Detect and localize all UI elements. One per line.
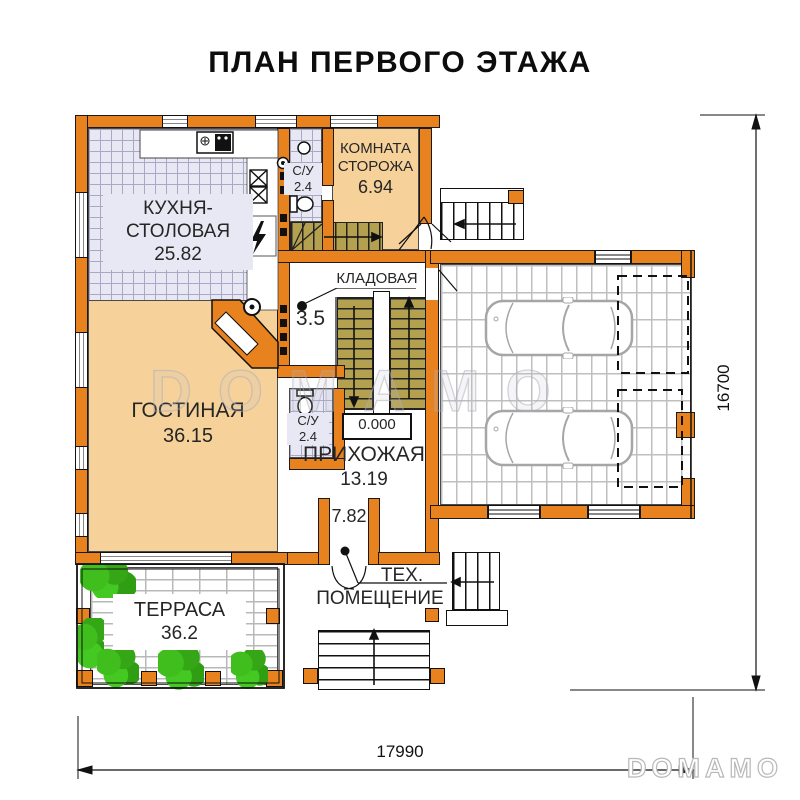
room-name: С/У: [287, 413, 329, 429]
living-room-label: ГОСТИНАЯ 36.15: [118, 398, 258, 448]
bath-bottom-label: С/У 2.4: [287, 413, 329, 445]
tech-room-label-line2: ПОМЕЩЕНИЕ: [306, 587, 454, 610]
elevation-value: 0.000: [344, 415, 410, 434]
window-guard-top: [330, 115, 378, 128]
main-exterior-steps: [318, 630, 430, 690]
room-area: 25.82: [103, 243, 253, 266]
terrace-post: [141, 671, 157, 686]
garage-pillar-bottom-right: [681, 478, 695, 506]
room-name: СТОРОЖА: [328, 158, 423, 176]
room-name: КУХНЯ-: [103, 197, 253, 220]
pantry-area-label: 3.5: [288, 306, 333, 332]
room-area: 6.94: [328, 177, 423, 199]
room-name: ТЕРРАСА: [113, 598, 246, 622]
tech-room-label-line1: ТЕХ.: [356, 564, 448, 587]
room-name: ПОМЕЩЕНИЕ: [306, 587, 454, 610]
room-name: КЛАДОВАЯ: [336, 270, 418, 288]
wall-garage-bottom-c: [640, 505, 695, 519]
elevation-marker: 0.000: [342, 413, 412, 440]
steps-post-left: [303, 668, 318, 684]
entry-porch-steps: [440, 202, 524, 240]
tech-leader-dot: [341, 547, 350, 556]
window-living-left-small1: [75, 446, 88, 470]
window-bath-top: [255, 115, 297, 128]
window-kitchen-top: [162, 115, 188, 128]
wall-mid-band: [277, 250, 440, 263]
plant-icon: [80, 564, 136, 598]
guard-room-label: КОМНАТА СТОРОЖА 6.94: [328, 140, 423, 199]
terrace-post: [76, 670, 93, 687]
room-name: ГОСТИНАЯ: [118, 398, 258, 424]
room-name: С/У: [284, 163, 322, 179]
room-name: ТЕХ.: [356, 564, 448, 587]
window-living-left: [75, 332, 88, 388]
stair-divider: [373, 291, 390, 415]
room-area: 13.19: [295, 468, 433, 491]
room-area: 7.82: [324, 506, 374, 528]
dimension-bottom: 17990: [350, 742, 450, 762]
window-garage-top: [595, 250, 631, 264]
side-steps-landing: [446, 610, 508, 626]
terrace-post: [205, 671, 221, 686]
terrace-post: [266, 608, 280, 624]
room-name: КОМНАТА: [328, 140, 423, 158]
terrace-post: [266, 670, 283, 687]
garage-pillar-mid-right: [676, 412, 695, 438]
car-icon: [483, 297, 635, 359]
room-area: 36.2: [113, 622, 246, 645]
wall-pantry-bottom: [277, 365, 345, 378]
room-area: 36.15: [118, 424, 258, 448]
hallway-label: ПРИХОЖАЯ 13.19: [295, 442, 433, 491]
upper-stair-flight: [290, 222, 383, 252]
window-garage-bottom2: [588, 505, 640, 519]
side-exterior-steps: [452, 552, 500, 610]
watermark-bottom-right: DOMAMO: [627, 753, 783, 784]
vestibule-area-label: 7.82: [324, 506, 374, 528]
central-stair-right-flight: [390, 297, 429, 410]
car-icon: [483, 407, 635, 469]
wall-garage-bottom-a: [430, 505, 488, 519]
window-kitchen-left: [75, 192, 88, 258]
window-garage-bottom1: [488, 505, 540, 519]
plant-icon: [231, 650, 268, 690]
porch-post: [508, 190, 524, 204]
pantry-label: КЛАДОВАЯ: [336, 270, 418, 288]
garage-side-door-gap: [426, 268, 438, 300]
kitchen-label: КУХНЯ- СТОЛОВАЯ 25.82: [103, 194, 253, 270]
wall-bath-guard-b: [322, 200, 334, 252]
floor-plan-canvas: ПЛАН ПЕРВОГО ЭТАЖА: [0, 0, 800, 800]
plant-icon: [158, 648, 204, 690]
room-name: СТОЛОВАЯ: [103, 220, 253, 243]
wall-garage-bottom-b: [540, 505, 588, 519]
page-title: ПЛАН ПЕРВОГО ЭТАЖА: [0, 46, 800, 80]
wall-hall-bottom-left: [287, 552, 320, 565]
window-living-left-small2: [75, 513, 88, 537]
steps-post-right: [430, 668, 445, 684]
garage-pillar-top-right: [681, 250, 695, 278]
room-area: 2.4: [284, 179, 322, 195]
plant-icon: [97, 648, 139, 688]
dimension-right: 16700: [714, 352, 734, 424]
wall-garage-top-a: [430, 250, 595, 264]
room-area: 3.5: [288, 306, 333, 332]
room-name: ПРИХОЖАЯ: [295, 442, 433, 468]
terrace-label: ТЕРРАСА 36.2: [113, 594, 246, 650]
bath-top-label: С/У 2.4: [284, 163, 322, 195]
